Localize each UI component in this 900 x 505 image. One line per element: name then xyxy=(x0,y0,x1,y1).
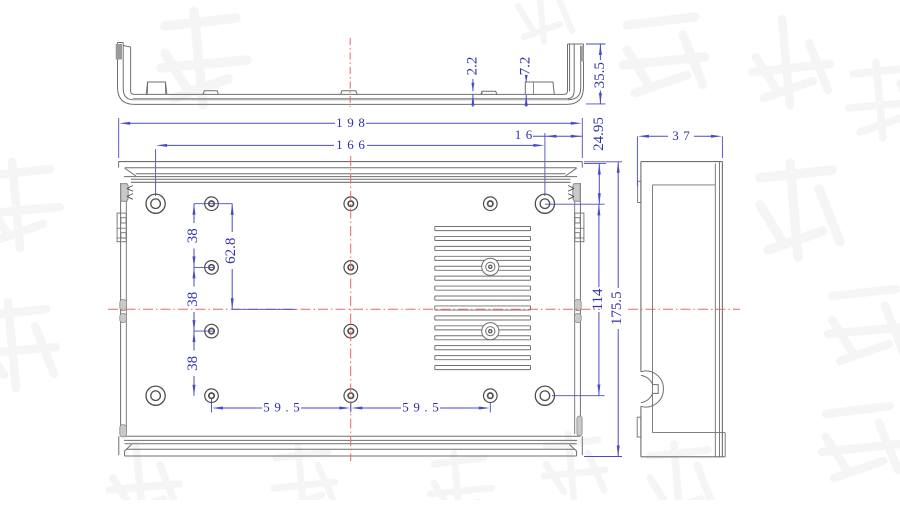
svg-text:175.5: 175.5 xyxy=(609,291,625,325)
svg-text:7.2: 7.2 xyxy=(518,57,534,76)
svg-text:62.8: 62.8 xyxy=(223,238,239,264)
svg-text:198: 198 xyxy=(336,115,369,130)
svg-text:35.5: 35.5 xyxy=(592,62,608,88)
svg-text:59.5: 59.5 xyxy=(263,399,304,414)
svg-text:38: 38 xyxy=(185,228,201,243)
svg-text:24.95: 24.95 xyxy=(591,117,607,151)
svg-text:37: 37 xyxy=(672,128,694,143)
svg-text:38: 38 xyxy=(185,356,201,371)
svg-text:2.2: 2.2 xyxy=(464,57,480,76)
svg-text:59.5: 59.5 xyxy=(402,399,443,414)
svg-text:166: 166 xyxy=(336,137,369,152)
svg-text:114: 114 xyxy=(590,288,606,310)
svg-text:38: 38 xyxy=(185,292,201,307)
svg-text:16: 16 xyxy=(515,127,537,142)
